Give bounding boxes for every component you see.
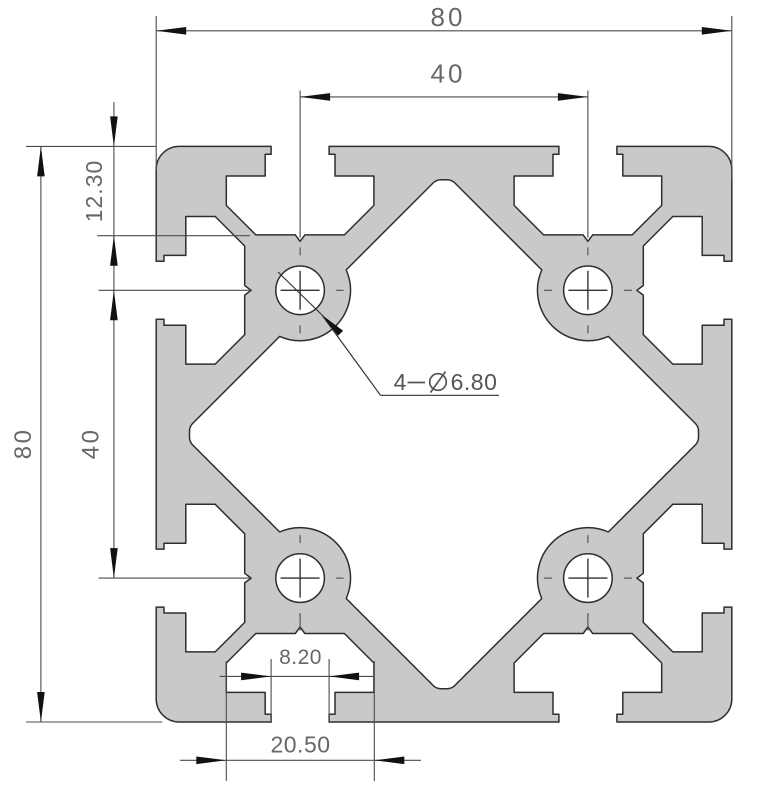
svg-text:4: 4	[394, 369, 407, 395]
svg-text:40: 40	[78, 428, 105, 460]
svg-text:12.30: 12.30	[81, 160, 107, 223]
svg-text:80: 80	[431, 2, 466, 32]
svg-text:8.20: 8.20	[279, 646, 322, 669]
svg-text:40: 40	[431, 59, 466, 89]
svg-text:6.80: 6.80	[451, 369, 498, 395]
svg-text:80: 80	[10, 428, 37, 460]
svg-text:20.50: 20.50	[270, 732, 330, 758]
